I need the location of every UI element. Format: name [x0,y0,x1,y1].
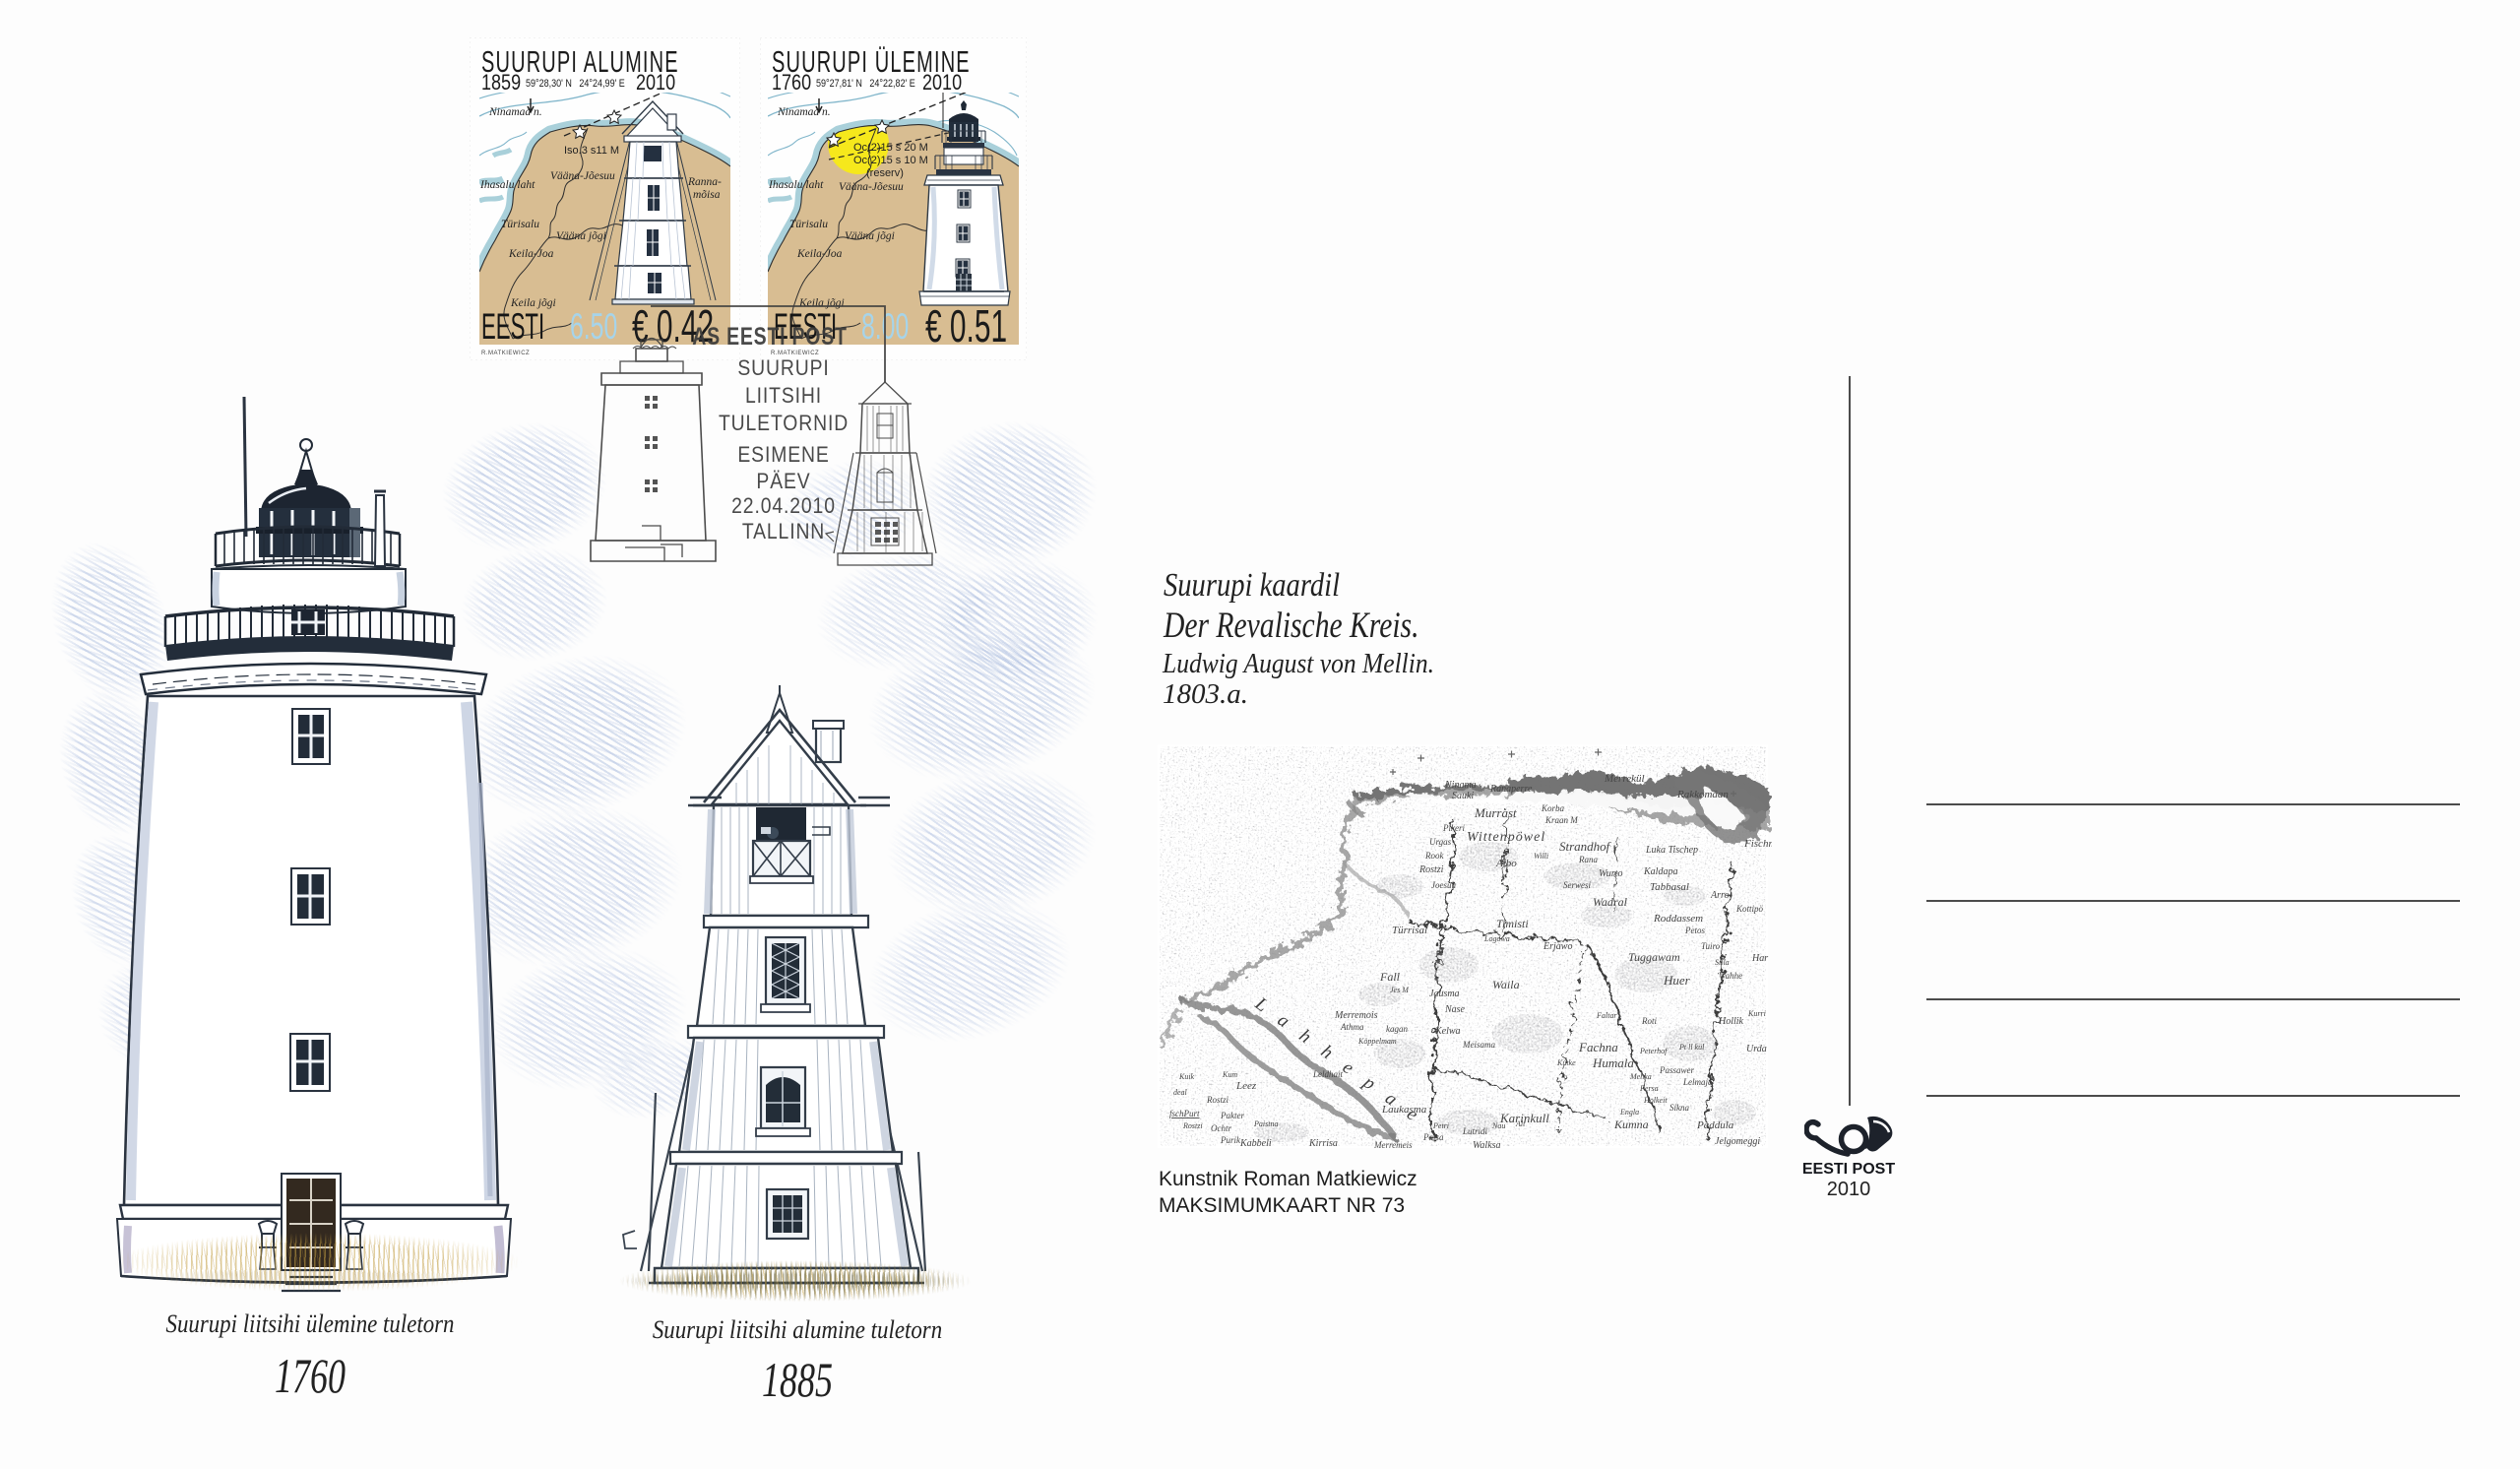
svg-text:Pt ll kül: Pt ll kül [1678,1043,1705,1052]
svg-text:ESIMENE: ESIMENE [737,443,829,467]
svg-text:Fall: Fall [1379,970,1401,984]
svg-text:Leldhait: Leldhait [1312,1069,1344,1079]
svg-text:Rakkomäan: Rakkomäan [1676,789,1729,800]
svg-text:PÄEV: PÄEV [756,470,810,493]
svg-text:Wurto: Wurto [1599,868,1622,879]
svg-text:Keila-Joa: Keila-Joa [508,248,554,260]
svg-text:Kelwa: Kelwa [1434,1026,1461,1037]
svg-text:Kraan M: Kraan M [1544,815,1578,825]
svg-text:Kurri: Kurri [1747,1009,1766,1018]
svg-text:Vääna-Jõesuu: Vääna-Jõesuu [550,170,615,182]
svg-text:Türrisal: Türrisal [1392,925,1427,936]
svg-text:Ochtr: Ochtr [1211,1123,1231,1133]
svg-text:Roddassem: Roddassem [1653,913,1703,925]
svg-text:22.04.2010: 22.04.2010 [731,494,836,518]
svg-text:Vääna jõgi: Vääna jõgi [845,230,895,242]
svg-text:Jausma: Jausma [1429,989,1460,999]
svg-text:Waila: Waila [1492,978,1520,991]
svg-text:Kottipö: Kottipö [1735,904,1764,914]
svg-text:Erjawo: Erjawo [1543,941,1572,952]
svg-text:Aibo: Aibo [1495,858,1517,869]
svg-text:Fachna: Fachna [1578,1040,1618,1054]
svg-text:Meisama: Meisama [1462,1040,1495,1050]
svg-text:Köppelmam: Köppelmam [1357,1037,1397,1046]
svg-text:2010: 2010 [922,71,962,95]
svg-text:Rostzi: Rostzi [1182,1121,1203,1130]
svg-text:Strandhof: Strandhof [1559,839,1612,854]
svg-text:AS EESTI POST: AS EESTI POST [692,323,847,351]
svg-text:Murrast: Murrast [1474,805,1517,820]
svg-text:Kaldapa: Kaldapa [1643,866,1677,877]
svg-text:Huer: Huer [1663,973,1691,988]
svg-text:Lutridi: Lutridi [1462,1126,1488,1136]
svg-text:Passawer: Passawer [1659,1065,1695,1075]
svg-text:Tuggawam: Tuggawam [1628,950,1680,964]
svg-text:Athma: Athma [1340,1022,1364,1032]
svg-text:59°28,30' N 24°24,99' E: 59°28,30' N 24°24,99' E [526,78,625,90]
svg-text:Ihasalu laht: Ihasalu laht [479,179,535,191]
svg-text:Ninamaa n.: Ninamaa n. [777,106,831,118]
svg-text:Vääna jõgi: Vääna jõgi [556,230,606,242]
svg-text:Tabbasal: Tabbasal [1650,881,1689,893]
svg-text:(reserv): (reserv) [866,167,904,179]
svg-text:Merremeis: Merremeis [1373,1140,1413,1150]
svg-text:Paddula: Paddula [1696,1119,1734,1131]
svg-text:Oc(2)15 s 20 M: Oc(2)15 s 20 M [853,142,928,154]
svg-text:Humala: Humala [1592,1055,1634,1070]
svg-text:TALLINN: TALLINN [742,520,825,543]
svg-text:Jelgomeggi: Jelgomeggi [1715,1136,1760,1147]
svg-text:Walksa: Walksa [1473,1140,1501,1151]
svg-text:Türisalu: Türisalu [501,219,539,230]
svg-text:Merrekül: Merrekül [1604,773,1645,785]
svg-text:deal: deal [1173,1088,1188,1097]
svg-text:EESTI: EESTI [481,306,544,347]
svg-text:Urda: Urda [1746,1044,1767,1054]
svg-text:Wadral: Wadral [1593,895,1628,909]
svg-text:Mehka: Mehka [1629,1072,1652,1081]
svg-text:Timisti: Timisti [1496,917,1529,930]
svg-text:Merremois: Merremois [1334,1010,1378,1021]
svg-text:Kütke: Kütke [1556,1058,1576,1067]
svg-text:R.MATKIEWICZ: R.MATKIEWICZ [481,351,530,356]
svg-text:Holkeit: Holkeit [1643,1096,1668,1105]
svg-text:Pikeri: Pikeri [1442,823,1465,833]
svg-text:Kabbeli: Kabbeli [1239,1138,1272,1149]
svg-text:Rostzi: Rostzi [1418,864,1444,875]
svg-text:Petos: Petos [1684,926,1705,935]
svg-text:Joesuu: Joesuu [1431,880,1456,890]
svg-text:SUURUPI: SUURUPI [737,356,829,380]
svg-text:Purik: Purik [1220,1135,1241,1145]
svg-text:kagan: kagan [1386,1024,1408,1034]
svg-text:2010: 2010 [636,71,675,95]
svg-text:Türisalu: Türisalu [789,219,828,230]
svg-text:Korba: Korba [1541,803,1565,813]
svg-text:Urgas: Urgas [1429,837,1452,847]
svg-text:Alt: Alt [1515,1119,1526,1128]
svg-text:59°27,81' N 24°22,82' E: 59°27,81' N 24°22,82' E [816,78,915,90]
svg-text:Ninamaa n.: Ninamaa n. [488,106,542,118]
svg-text:Paistna: Paistna [1253,1119,1278,1128]
svg-text:Sauki: Sauki [1452,791,1474,801]
svg-text:Paisa: Paisa [1422,1132,1444,1142]
svg-text:Peterhof: Peterhof [1639,1047,1669,1055]
svg-text:Ihasalu laht: Ihasalu laht [768,179,824,191]
svg-text:Kum: Kum [1222,1070,1237,1079]
svg-text:Kuik: Kuik [1178,1072,1195,1081]
svg-text:Engla: Engla [1619,1108,1639,1117]
svg-text:Fischm: Fischm [1743,838,1772,850]
svg-text:Wahhe: Wahhe [1719,971,1742,981]
svg-text:Arro: Arro [1710,890,1730,901]
svg-text:Nase: Nase [1444,1004,1466,1015]
svg-text:Hollik: Hollik [1718,1016,1744,1027]
svg-text:Jes M: Jes M [1390,986,1410,994]
svg-text:Tuiro: Tuiro [1701,941,1721,951]
svg-text:Har: Har [1751,953,1768,964]
svg-text:Leez: Leez [1235,1080,1257,1092]
svg-text:Ranaperre: Ranaperre [1489,784,1533,795]
svg-text:Lelmaja: Lelmaja [1682,1077,1713,1087]
svg-text:Roti: Roti [1641,1016,1657,1026]
svg-text:Nau: Nau [1491,1121,1505,1130]
svg-text:1760: 1760 [772,71,811,95]
svg-text:Sikna: Sikna [1669,1103,1689,1113]
svg-text:Kumna: Kumna [1613,1118,1649,1131]
svg-text:Ranna-: Ranna- [687,176,722,188]
svg-text:Rook: Rook [1424,851,1444,861]
svg-text:Vääna-Jõesuu: Vääna-Jõesuu [839,181,904,193]
svg-text:Serwesi: Serwesi [1563,880,1591,890]
svg-text:mõisa: mõisa [693,189,721,201]
svg-text:Rostzi: Rostzi [1206,1095,1229,1105]
svg-text:Rana: Rana [1578,855,1598,864]
svg-text:Pakter: Pakter [1220,1111,1244,1120]
svg-text:1859: 1859 [481,71,521,95]
svg-text:Wittenpöwel: Wittenpöwel [1467,830,1545,845]
svg-text:Iso.3 s11 M: Iso.3 s11 M [564,145,619,157]
svg-text:Keila-Joa: Keila-Joa [796,248,843,260]
svg-text:LIITSIHI: LIITSIHI [745,384,822,408]
svg-text:Silla: Silla [1715,958,1730,967]
svg-text:Luka Tischep: Luka Tischep [1645,845,1698,856]
svg-text:Ninama: Ninama [1444,780,1477,791]
svg-text:TULETORNID: TULETORNID [719,412,849,435]
svg-text:Willi: Willi [1534,852,1548,861]
svg-text:Faltar: Faltar [1596,1011,1617,1020]
svg-text:Petri: Petri [1432,1121,1449,1130]
svg-text:Oc(2)15 s 10 M: Oc(2)15 s 10 M [853,155,928,166]
svg-text:Persa: Persa [1639,1084,1659,1093]
svg-text:Kirrisa: Kirrisa [1308,1138,1338,1149]
svg-text:Logowa: Logowa [1483,934,1510,943]
svg-text:Laukasma: Laukasma [1381,1104,1427,1116]
svg-text:fschPurt: fschPurt [1169,1109,1200,1118]
